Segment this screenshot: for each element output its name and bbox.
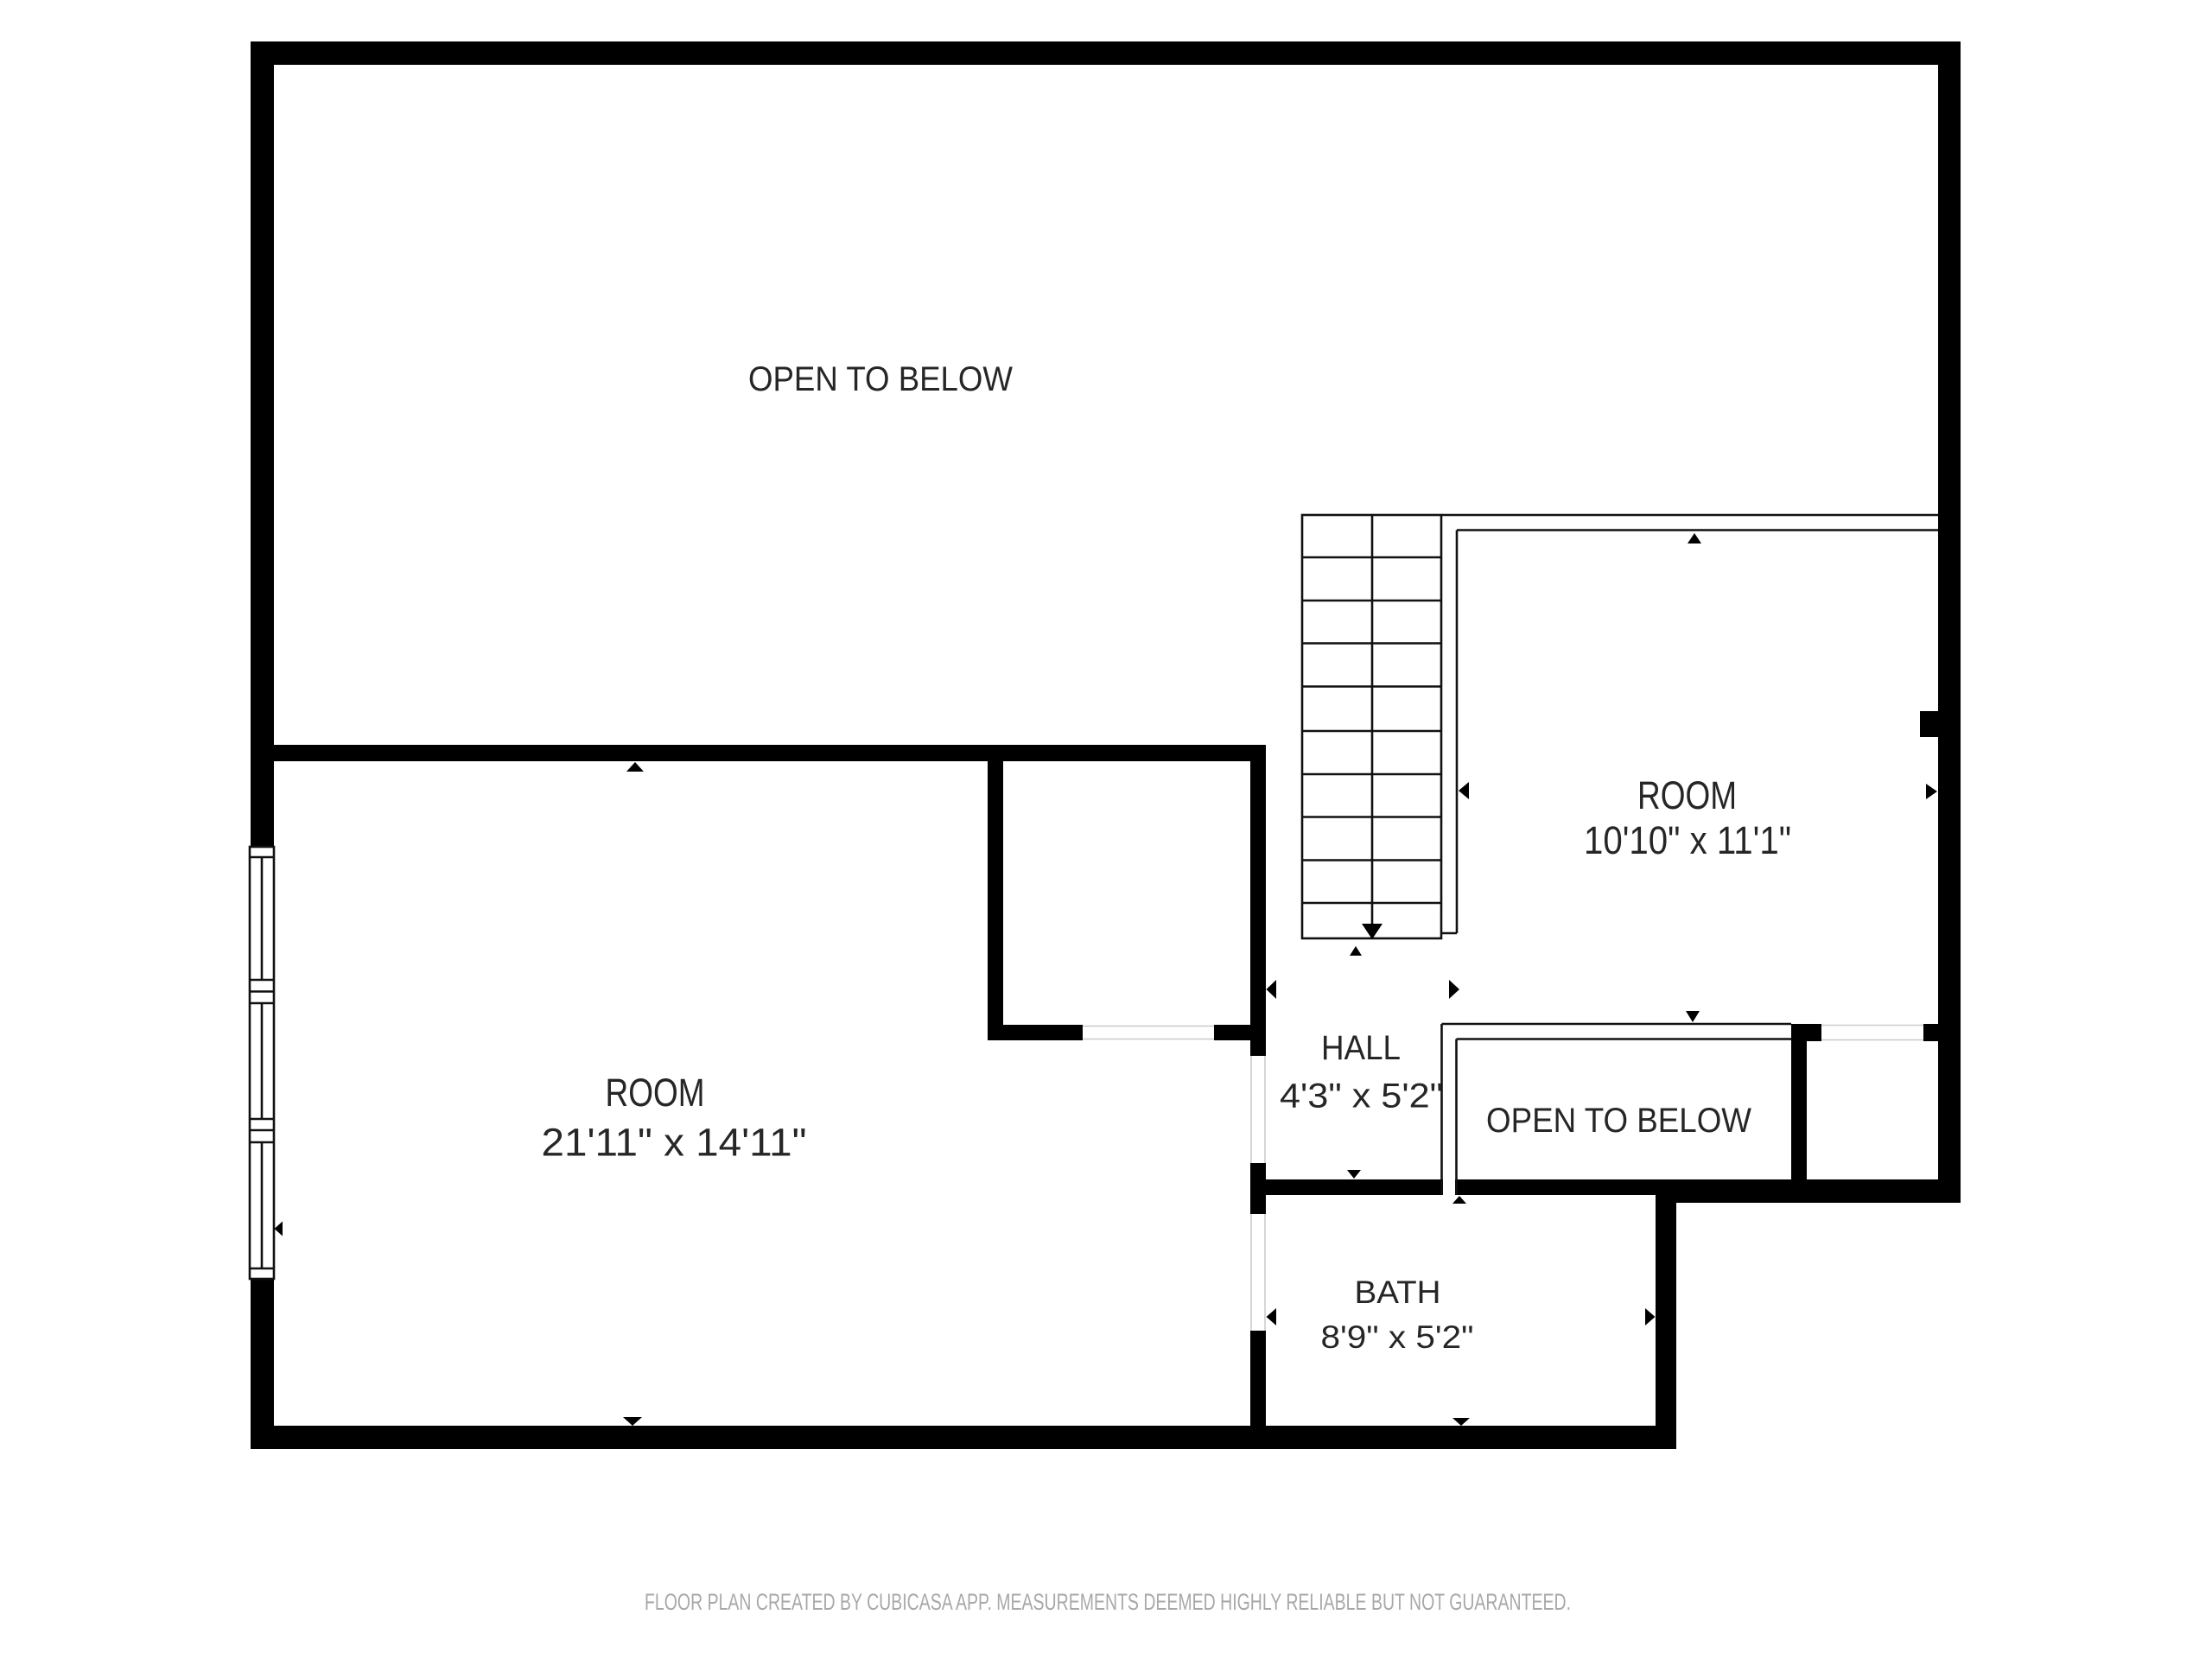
svg-text:ROOM: ROOM xyxy=(606,1071,705,1115)
svg-text:OPEN TO BELOW: OPEN TO BELOW xyxy=(748,360,1013,398)
svg-text:BATH: BATH xyxy=(1355,1274,1441,1310)
svg-text:OPEN TO BELOW: OPEN TO BELOW xyxy=(1486,1102,1751,1140)
svg-text:8'9" x 5'2": 8'9" x 5'2" xyxy=(1321,1319,1474,1355)
svg-text:ROOM: ROOM xyxy=(1637,773,1737,817)
svg-text:HALL: HALL xyxy=(1321,1029,1401,1067)
svg-text:21'11" x 14'11": 21'11" x 14'11" xyxy=(542,1121,807,1165)
svg-text:10'10" x 11'1": 10'10" x 11'1" xyxy=(1584,818,1791,862)
svg-text:FLOOR PLAN CREATED BY CUBICASA: FLOOR PLAN CREATED BY CUBICASA APP. MEAS… xyxy=(645,1589,1571,1615)
svg-text:4'3" x 5'2": 4'3" x 5'2" xyxy=(1280,1077,1443,1116)
